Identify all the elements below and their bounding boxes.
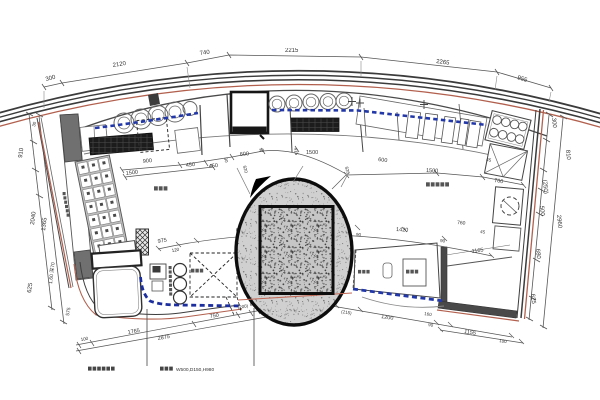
- svg-text:2120: 2120: [112, 61, 127, 69]
- svg-text:90: 90: [428, 322, 434, 328]
- svg-text:625: 625: [529, 294, 536, 305]
- svg-text:680: 680: [534, 249, 541, 260]
- svg-text:W500,D150,H980: W500,D150,H980: [176, 367, 214, 373]
- svg-text:30: 30: [259, 148, 265, 153]
- svg-text:500: 500: [538, 206, 545, 217]
- svg-text:975: 975: [157, 237, 167, 245]
- svg-text:600: 600: [378, 157, 388, 164]
- svg-text:45: 45: [480, 229, 486, 235]
- svg-text:1765: 1765: [127, 328, 140, 336]
- svg-text:1155: 1155: [464, 329, 477, 337]
- svg-text:620: 620: [242, 165, 249, 174]
- svg-text:(200): (200): [237, 303, 249, 310]
- svg-text:(215): (215): [341, 309, 353, 316]
- svg-text:30: 30: [31, 121, 37, 128]
- svg-text:90: 90: [440, 238, 446, 244]
- svg-text:2215: 2215: [285, 48, 299, 54]
- svg-text:120: 120: [171, 247, 180, 253]
- svg-text:575: 575: [65, 307, 72, 316]
- svg-text:2960: 2960: [555, 215, 562, 230]
- svg-text:760: 760: [457, 220, 466, 227]
- svg-text:450: 450: [186, 162, 196, 169]
- svg-text:600: 600: [240, 151, 250, 158]
- svg-text:2875: 2875: [157, 334, 170, 342]
- svg-text:30: 30: [223, 157, 229, 164]
- svg-text:955: 955: [516, 75, 528, 84]
- svg-text:750: 750: [209, 312, 219, 320]
- svg-text:625: 625: [27, 282, 34, 293]
- svg-text:100: 100: [499, 338, 508, 344]
- svg-text:300: 300: [550, 118, 557, 129]
- svg-text:300: 300: [45, 75, 57, 83]
- svg-text:2040: 2040: [30, 211, 38, 226]
- svg-text:160: 160: [424, 311, 433, 317]
- svg-text:740: 740: [199, 50, 210, 57]
- svg-text:900: 900: [143, 158, 153, 165]
- svg-text:1.60 深70: 1.60 深70: [47, 262, 57, 285]
- svg-text:810: 810: [564, 150, 571, 161]
- svg-text:450: 450: [209, 163, 219, 170]
- svg-text:1500: 1500: [306, 150, 318, 156]
- svg-text:1365: 1365: [41, 217, 49, 232]
- svg-text:910: 910: [18, 147, 25, 158]
- svg-text:415: 415: [293, 147, 299, 156]
- svg-text:1200: 1200: [381, 314, 394, 322]
- svg-text:1420: 1420: [396, 227, 409, 234]
- svg-text:(250): (250): [541, 180, 548, 195]
- svg-text:90: 90: [356, 232, 362, 237]
- svg-text:100: 100: [80, 336, 89, 342]
